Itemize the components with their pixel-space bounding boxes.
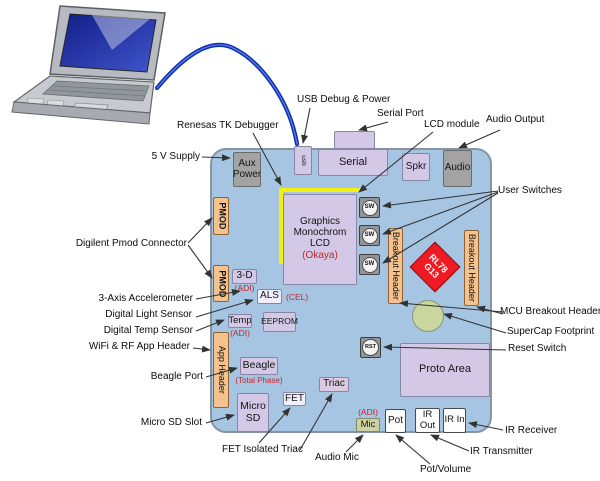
callout-reset-switch: Reset Switch bbox=[508, 343, 566, 354]
callout-digilent-pmod: Digilent Pmod Connector bbox=[76, 238, 187, 249]
board-diagram-canvas: Aux Power usb Serial Spkr Audio PMOD PMO… bbox=[0, 0, 600, 481]
accelerometer-chip: 3-D bbox=[232, 269, 257, 284]
callout-accelerometer: 3-Axis Accelerometer bbox=[99, 293, 193, 304]
pmod-header-top: PMOD bbox=[213, 197, 229, 235]
callout-user-switches: User Switches bbox=[498, 185, 562, 196]
callout-light-sensor: Digital Light Sensor bbox=[105, 309, 192, 320]
triac-module: Triac bbox=[319, 377, 349, 392]
user-switch-2: SW bbox=[359, 225, 380, 246]
temp-sensor-chip: Temp bbox=[228, 314, 252, 328]
callout-audio-output: Audio Output bbox=[486, 114, 544, 125]
beagle-port-module: Beagle bbox=[240, 357, 278, 375]
serial-module: Serial bbox=[318, 149, 388, 176]
light-sensor-chip: ALS bbox=[257, 289, 282, 304]
proto-area: Proto Area bbox=[400, 343, 490, 397]
ir-out-module: IR Out bbox=[415, 408, 440, 433]
aux-power-module: Aux Power bbox=[233, 152, 261, 187]
callout-mcu-breakout-headers: MCU Breakout Headers bbox=[500, 306, 600, 317]
callout-wifi-rf-header: WiFi & RF App Header bbox=[89, 341, 190, 352]
callout-audio-mic: Audio Mic bbox=[315, 452, 359, 463]
callout-ir-transmitter: IR Transmitter bbox=[470, 446, 533, 457]
cel-annotation: (CEL) bbox=[286, 293, 308, 302]
callout-5v-supply: 5 V Supply bbox=[152, 151, 200, 162]
adi-annotation-accel: (ADI) bbox=[232, 284, 257, 293]
callout-serial-port: Serial Port bbox=[377, 108, 424, 119]
mic-module: Mic bbox=[356, 418, 380, 432]
callout-ir-receiver: IR Receiver bbox=[505, 425, 557, 436]
total-phase-annotation: (Total Phase) bbox=[231, 377, 287, 385]
supercap-footprint bbox=[412, 300, 444, 332]
pot-module: Pot bbox=[385, 409, 406, 433]
laptop-illustration bbox=[12, 6, 165, 124]
callout-renesas-tk-debugger: Renesas TK Debugger bbox=[177, 120, 279, 131]
serial-connector-tab bbox=[334, 131, 375, 149]
audio-jack-module: Audio bbox=[443, 150, 472, 187]
adi-annotation-mic: (ADI) bbox=[354, 408, 382, 417]
usb-connector: usb bbox=[294, 146, 312, 175]
ir-in-module: IR In bbox=[443, 408, 466, 433]
reset-button: RST bbox=[360, 337, 381, 358]
callout-temp-sensor: Digital Temp Sensor bbox=[104, 325, 193, 336]
user-switch-3: SW bbox=[359, 254, 380, 275]
micro-sd-slot: Micro SD bbox=[237, 393, 269, 432]
callout-pot-volume: Pot/Volume bbox=[420, 464, 471, 475]
user-switch-1: SW bbox=[359, 197, 380, 218]
app-header: App Header bbox=[213, 332, 229, 408]
pmod-header-bottom: PMOD bbox=[213, 265, 229, 302]
callout-lcd-module: LCD module bbox=[424, 119, 480, 130]
adi-annotation-temp: (ADI) bbox=[228, 329, 252, 338]
callout-beagle-port: Beagle Port bbox=[151, 371, 203, 382]
speaker-module: Spkr bbox=[402, 153, 430, 181]
eeprom-chip: EEPROM bbox=[263, 312, 296, 332]
callout-micro-sd-slot: Micro SD Slot bbox=[141, 417, 202, 428]
graphics-lcd-module: Graphics Monochrom LCD (Okaya) bbox=[283, 194, 357, 285]
fet-module: FET bbox=[283, 392, 306, 406]
callout-fet-isolated-triac: FET Isolated Triac bbox=[222, 444, 303, 455]
breakout-header-left: Breakout Header bbox=[388, 228, 403, 304]
breakout-header-right: Breakout Header bbox=[464, 230, 479, 306]
callout-supercap-footprint: SuperCap Footprint bbox=[507, 326, 594, 337]
callout-usb-debug-power: USB Debug & Power bbox=[297, 94, 390, 105]
